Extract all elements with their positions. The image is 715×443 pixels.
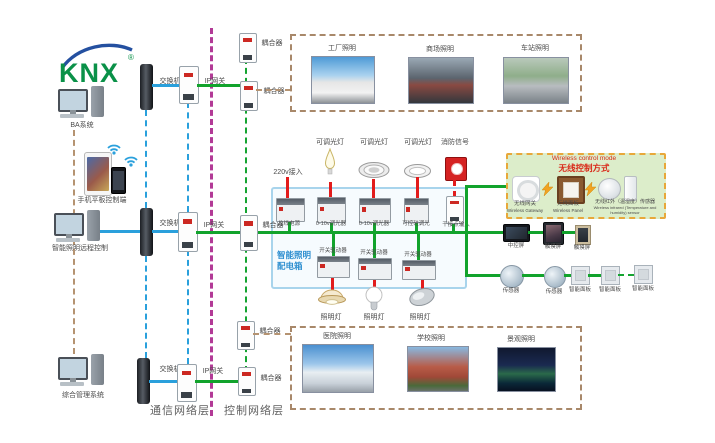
touch-screen-icon xyxy=(575,225,591,245)
photo-mall xyxy=(408,57,474,104)
coupler-bottom-2 xyxy=(238,367,256,396)
wireless-title-zh: 无线控制方式 xyxy=(506,162,662,174)
pc-ba-system xyxy=(58,86,106,120)
switch-actuator-label: 开关驱动器 xyxy=(396,252,440,258)
knx-logo-text: KNX xyxy=(59,58,119,88)
rowB-segment xyxy=(522,274,544,277)
wifi-icon xyxy=(106,142,122,155)
coupler-bottom-1 xyxy=(237,321,255,350)
rowB-segment xyxy=(588,274,601,277)
fire-signal-line xyxy=(453,180,456,197)
ip-gateway-mid xyxy=(178,212,198,252)
switch-gateway-link-mid xyxy=(152,230,179,233)
photo-label: 工厂照明 xyxy=(313,45,371,53)
wireless-gateway-label-zh: 无线网关 xyxy=(504,201,546,207)
dish-lamp-icon xyxy=(408,288,436,308)
monitor-screen xyxy=(58,89,88,112)
candle-bulb-icon xyxy=(323,148,337,184)
ethernet-switch-top xyxy=(140,64,153,110)
lamp-feed-line xyxy=(329,182,332,198)
pc-management xyxy=(58,354,106,388)
bus-power-module xyxy=(276,198,305,222)
wifi-icon xyxy=(123,154,139,167)
bulb-lamp-icon xyxy=(365,286,383,312)
wireless-gateway-icon xyxy=(512,176,540,202)
downlight-icon xyxy=(358,162,390,179)
keyboard xyxy=(60,382,84,386)
knx-line-bottom xyxy=(195,380,239,383)
rowA-branch-line xyxy=(466,231,504,234)
wireless-panel-label-en: Wireless Panel xyxy=(544,208,592,213)
power-in-label: 220v接入 xyxy=(268,169,308,177)
switch-bus-dashed-top xyxy=(145,110,147,208)
phone-device xyxy=(111,167,126,194)
lightning-icon xyxy=(584,182,597,196)
cabinet-title-line2: 配电箱 xyxy=(277,260,303,272)
switch-bus-dashed-bottom xyxy=(145,256,147,358)
dimmable-lamp-label: 可调光灯 xyxy=(351,139,397,147)
coupler-to-photos-link-top xyxy=(256,89,291,91)
lamp-feed-line xyxy=(372,179,375,199)
fire-alarm-icon xyxy=(445,157,467,181)
photo-label: 学校照明 xyxy=(402,335,460,343)
pc-tower xyxy=(91,354,104,385)
wireless-gateway-label-en: Wireless Gateway xyxy=(500,208,550,213)
keyboard xyxy=(60,114,84,118)
ip-gateway-bottom xyxy=(177,364,197,402)
central-screen-icon xyxy=(503,224,530,242)
rowA-segment xyxy=(528,231,543,234)
rowB-segment-dashed xyxy=(618,274,634,276)
dimmer-module-1 xyxy=(317,197,346,223)
switch-gateway-link-bottom xyxy=(149,380,178,383)
registered-mark: ® xyxy=(128,53,134,62)
switch-actuator-module xyxy=(317,256,350,278)
triac-dimmer-module xyxy=(404,198,429,223)
pc-lighting-label: 智能照明远程控制 xyxy=(42,245,118,253)
pc-management-label: 综合管理系统 xyxy=(50,392,116,400)
wireless-sensor-module-icon xyxy=(624,176,637,201)
photo-label: 景观照明 xyxy=(492,336,550,344)
wireless-sensor-icon xyxy=(598,178,621,200)
dry-contact-label: 干接点输入 xyxy=(433,222,479,228)
smart-panel-icon xyxy=(634,265,653,284)
coupler-to-photos-link-bottom xyxy=(253,333,291,335)
lamp-label: 照明灯 xyxy=(308,314,354,322)
sensor-label: 传感器 xyxy=(496,288,526,294)
lightning-icon xyxy=(541,182,554,196)
smart-panel-label: 智能面板 xyxy=(595,287,625,293)
coupler-label: 耦合器 xyxy=(256,375,286,383)
photo-factory xyxy=(311,56,375,104)
pc-tower xyxy=(91,86,104,117)
switch-actuator-label: 开关驱动器 xyxy=(352,250,396,256)
dry-contact-module xyxy=(446,196,464,224)
dimmable-lamp-label: 可调光灯 xyxy=(307,139,353,147)
switch-actuator-module xyxy=(402,260,436,280)
coupler-mid xyxy=(240,215,258,251)
dimmer-module-2 xyxy=(359,198,391,223)
knx-line-top xyxy=(197,84,241,87)
smart-panel-label: 智能面板 xyxy=(628,286,658,292)
tablet-device xyxy=(84,152,112,196)
sensor-icon xyxy=(500,265,524,288)
switch-gateway-link-top xyxy=(152,84,180,87)
pc-ba-label: BA系统 xyxy=(52,122,112,130)
touch-screen-label: 触摸屏 xyxy=(567,245,597,251)
photo-label: 车站照明 xyxy=(504,45,566,53)
wireless-panel-icon xyxy=(557,176,585,204)
smart-panel-label: 智能面板 xyxy=(565,287,595,293)
monitor-screen xyxy=(54,213,84,236)
lamp-label: 照明灯 xyxy=(397,314,443,322)
knx-logo: KNX ® xyxy=(56,38,138,90)
fire-signal-label: 消防信号 xyxy=(432,139,478,147)
photo-label: 商场照明 xyxy=(409,46,471,54)
gateway-label: IP网关 xyxy=(196,368,230,376)
wireless-branch-line xyxy=(466,185,507,188)
rowA-segment xyxy=(562,231,575,234)
touch-screen-label: 触摸屏 xyxy=(538,244,568,250)
power-in-line xyxy=(286,177,289,199)
photo-landscape xyxy=(497,347,556,392)
comm-layer-label: 通信网络层 xyxy=(148,402,212,418)
photo-hospital xyxy=(302,344,374,393)
gateway-bus-dashed-bottom xyxy=(187,250,189,364)
coupler-top-2 xyxy=(240,81,258,111)
lamp-label: 照明灯 xyxy=(351,314,397,322)
gateway-label: IP网关 xyxy=(197,222,231,230)
touch-screen-icon xyxy=(543,222,564,245)
pc-tower xyxy=(87,210,100,241)
rowB-branch-line xyxy=(466,274,501,277)
pc-lighting-control xyxy=(54,210,102,244)
switch-actuator-label: 开关驱动器 xyxy=(311,248,355,254)
wireless-panel-label-zh: 无线面板 xyxy=(546,201,590,207)
photo-station xyxy=(503,57,569,104)
sensor-icon xyxy=(544,266,566,288)
ctrl-layer-label: 控制网络层 xyxy=(222,402,286,418)
central-screen-label: 中控屏 xyxy=(501,243,531,249)
wireless-title-en: Wireless control mode xyxy=(506,155,662,162)
diagram-canvas: KNX ® BA系统 手机平板控制端 智能照明远程控制 xyxy=(0,0,715,443)
photo-label: 医院照明 xyxy=(308,333,366,341)
gateway-bus-dashed-top xyxy=(187,102,189,212)
ip-gateway-top xyxy=(179,66,199,104)
rowB-segment xyxy=(564,274,571,277)
panel-light-icon xyxy=(404,164,431,178)
monitor-screen xyxy=(58,357,88,380)
lamp-feed-line xyxy=(416,177,419,199)
keyboard xyxy=(56,238,80,242)
pc-to-switch-link xyxy=(100,230,144,233)
ceiling-lamp-icon xyxy=(317,289,347,307)
coupler-top-1 xyxy=(239,33,257,63)
coupler-label: 耦合器 xyxy=(257,40,287,48)
wireless-sensor-label-en: Wireless infrared (Temperature and humid… xyxy=(588,206,662,215)
mobile-label: 手机平板控制端 xyxy=(66,197,138,205)
bus-stub xyxy=(332,234,335,258)
switch-actuator-module xyxy=(358,258,392,280)
photo-school xyxy=(407,346,469,392)
